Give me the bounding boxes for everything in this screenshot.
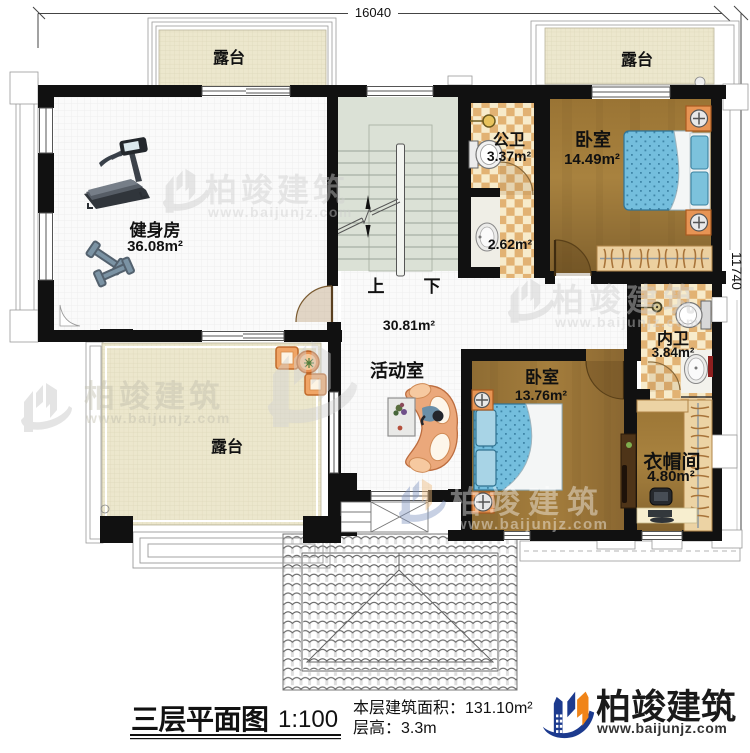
svg-text:www.baijunjz.com: www.baijunjz.com [454,516,608,533]
svg-text:三层平面图: 三层平面图 [131,704,269,735]
svg-text:露台: 露台 [621,50,653,69]
svg-text:www.baijunjz.com: www.baijunjz.com [85,410,231,426]
svg-text:本层建筑面积：131.10m²: 本层建筑面积：131.10m² [353,699,533,717]
svg-text:柏竣建筑: 柏竣建筑 [84,379,224,414]
svg-text:13.76m²: 13.76m² [515,387,567,403]
svg-text:层高：3.3m: 层高：3.3m [353,719,437,737]
svg-text:卧室: 卧室 [575,129,611,150]
svg-text:3.84m²: 3.84m² [652,345,695,360]
svg-text:下: 下 [424,277,441,296]
svg-text:柏竣建筑: 柏竣建筑 [450,485,606,520]
svg-text:3.37m²: 3.37m² [487,148,532,164]
svg-text:11740: 11740 [729,252,745,290]
svg-text:36.08m²: 36.08m² [127,238,183,255]
svg-text:2.62m²: 2.62m² [488,236,533,252]
svg-text:上: 上 [368,277,385,296]
svg-text:4.80m²: 4.80m² [647,468,695,485]
svg-text:www.baijunjz.com: www.baijunjz.com [554,314,700,330]
svg-text:30.81m²: 30.81m² [383,317,435,333]
svg-text:14.49m²: 14.49m² [564,151,620,168]
svg-text:活动室: 活动室 [370,360,424,381]
svg-text:柏竣建筑: 柏竣建筑 [205,172,349,208]
svg-text:1:100: 1:100 [278,706,338,733]
svg-text:柏竣建筑: 柏竣建筑 [552,282,700,318]
svg-text:16040: 16040 [355,5,391,20]
svg-text:卧室: 卧室 [525,367,559,387]
svg-text:健身房: 健身房 [130,220,181,240]
svg-text:露台: 露台 [211,437,243,456]
svg-text:公卫: 公卫 [493,131,525,149]
svg-text:www.baijunjz.com: www.baijunjz.com [596,720,727,736]
svg-text:露台: 露台 [213,48,245,67]
svg-text:www.baijunjz.com: www.baijunjz.com [207,204,353,220]
